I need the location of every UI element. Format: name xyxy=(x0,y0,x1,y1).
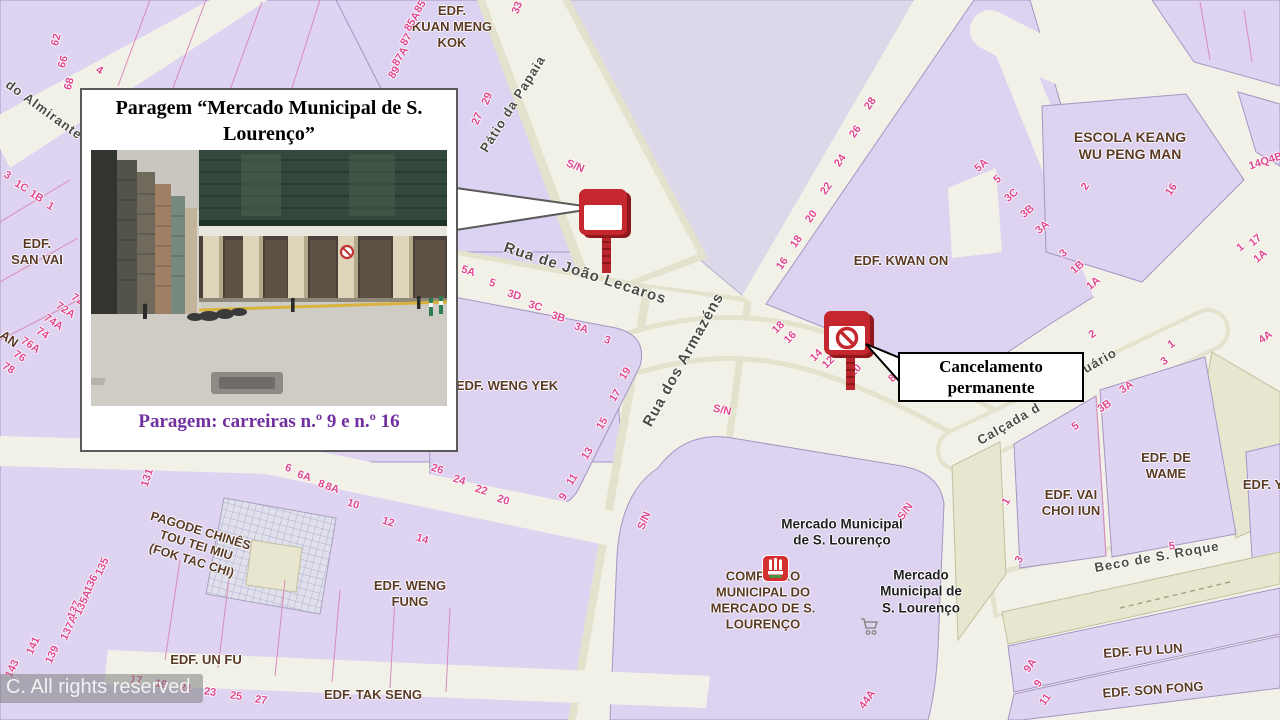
municipal-market-icon xyxy=(762,569,789,586)
marker-market xyxy=(762,555,789,587)
copyright-watermark: C. All rights reserved xyxy=(0,674,203,703)
stop-photo xyxy=(91,150,447,406)
bus-stop-sign-icon xyxy=(577,264,635,281)
bus-stop-callout: Paragem “Mercado Municipal de S. Lourenç… xyxy=(80,88,458,452)
marker-cart xyxy=(859,617,881,642)
cancel-annotation-text: Cancelamento permanente xyxy=(926,356,1056,399)
marker-bus-stop xyxy=(577,183,635,282)
map-slide: EDF. KUAN MENG KOKESCOLA KEANG WU PENG M… xyxy=(0,0,1280,720)
cancel-callout-tail xyxy=(856,332,902,386)
callout-caption: Paragem: carreiras n.º 9 e n.º 16 xyxy=(82,406,456,433)
cancel-annotation: Cancelamento permanente xyxy=(898,352,1084,402)
shopping-cart-icon xyxy=(859,624,881,641)
callout-title: Paragem “Mercado Municipal de S. Lourenç… xyxy=(82,90,456,147)
